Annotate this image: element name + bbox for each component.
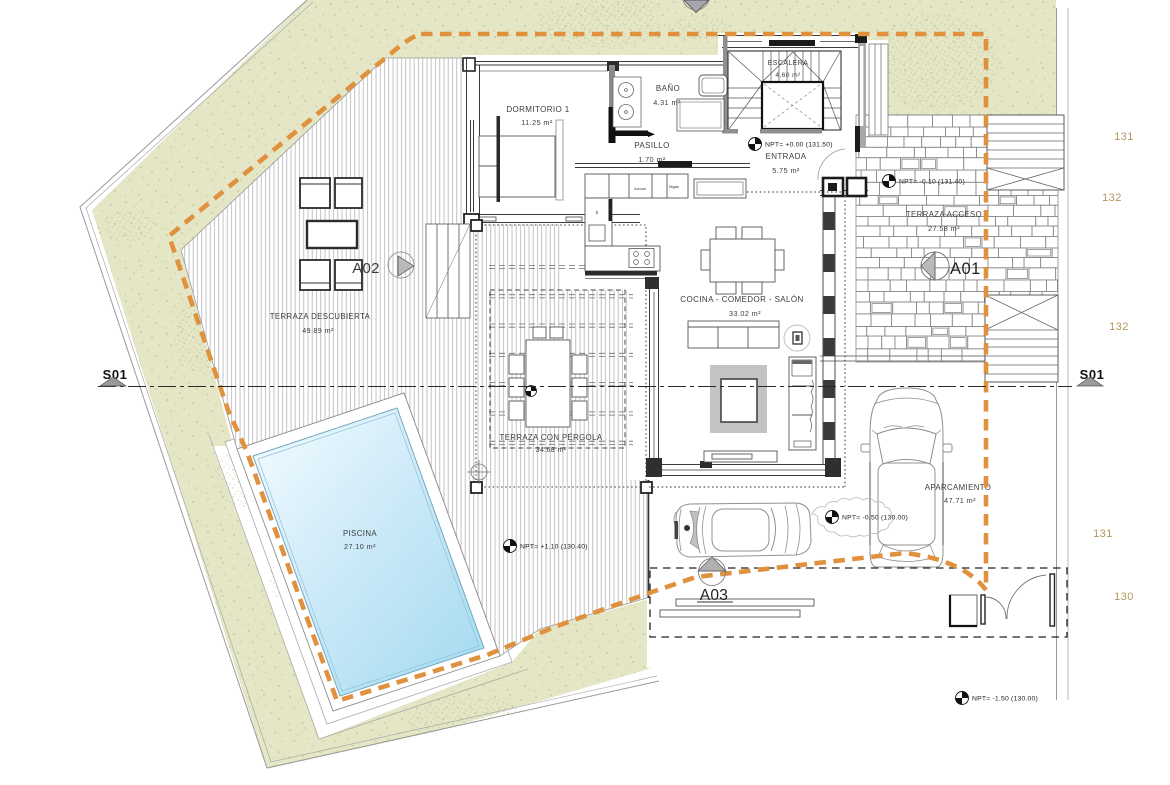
svg-text:4.60 m²: 4.60 m² — [775, 72, 801, 79]
svg-text:47.71 m²: 47.71 m² — [944, 496, 976, 505]
svg-text:DORMITORIO 1: DORMITORIO 1 — [506, 105, 569, 114]
svg-text:A01: A01 — [950, 260, 981, 278]
svg-text:A02: A02 — [352, 260, 380, 277]
svg-text:4.31 m²: 4.31 m² — [653, 98, 681, 107]
svg-text:PISCINA: PISCINA — [343, 529, 377, 538]
svg-text:NPT= -0.10 (131.40): NPT= -0.10 (131.40) — [899, 179, 965, 186]
svg-text:NPT= -0.50 (130.00): NPT= -0.50 (130.00) — [842, 515, 908, 522]
svg-text:27.10 m²: 27.10 m² — [344, 542, 376, 551]
svg-text:Mgas: Mgas — [669, 184, 679, 189]
svg-text:131: 131 — [1114, 131, 1134, 143]
svg-text:nomos: nomos — [634, 186, 646, 191]
svg-text:PASILLO: PASILLO — [634, 141, 670, 150]
svg-text:49.89 m²: 49.89 m² — [302, 326, 334, 335]
svg-text:BAÑO: BAÑO — [656, 84, 680, 93]
svg-text:A03: A03 — [700, 587, 728, 604]
svg-text:132: 132 — [1109, 321, 1129, 333]
svg-text:APARCAMIENTO: APARCAMIENTO — [925, 483, 991, 492]
svg-text:5.75 m²: 5.75 m² — [772, 166, 800, 175]
svg-text:NPT= +0.00 (131.50): NPT= +0.00 (131.50) — [765, 142, 833, 149]
svg-text:132: 132 — [1102, 192, 1122, 204]
svg-text:COCINA - COMEDOR - SALÓN: COCINA - COMEDOR - SALÓN — [680, 295, 803, 304]
svg-text:34.68 m²: 34.68 m² — [536, 447, 567, 454]
svg-text:TERRAZA ACCESO: TERRAZA ACCESO — [906, 210, 982, 219]
svg-text:ENTRADA: ENTRADA — [765, 152, 806, 161]
svg-text:NPT= +1.10 (130.40): NPT= +1.10 (130.40) — [520, 544, 588, 551]
svg-text:27.58 m²: 27.58 m² — [928, 224, 960, 233]
svg-text:NPT= -1.50 (130.00): NPT= -1.50 (130.00) — [972, 696, 1038, 703]
svg-text:TERRAZA DESCUBIERTA: TERRAZA DESCUBIERTA — [270, 312, 371, 321]
svg-text:130: 130 — [1114, 591, 1134, 603]
svg-text:TERRAZA CON PÉRGOLA: TERRAZA CON PÉRGOLA — [500, 433, 603, 442]
svg-text:ESCALERA: ESCALERA — [768, 60, 809, 67]
svg-text:33.02 m²: 33.02 m² — [729, 309, 761, 318]
svg-text:131: 131 — [1093, 528, 1113, 540]
svg-text:1.70 m²: 1.70 m² — [638, 155, 666, 164]
svg-text:11.25 m²: 11.25 m² — [521, 118, 553, 127]
